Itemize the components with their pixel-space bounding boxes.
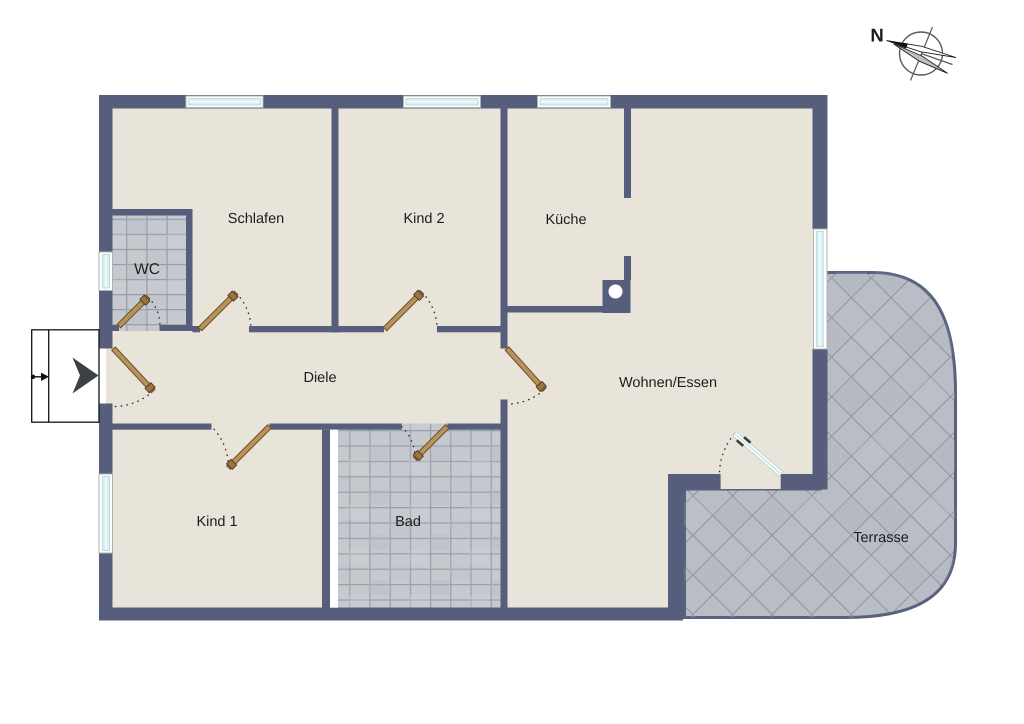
svg-text:Terrasse: Terrasse (853, 530, 909, 546)
svg-text:Diele: Diele (303, 370, 336, 386)
svg-text:Bad: Bad (395, 514, 421, 530)
svg-text:Kind 2: Kind 2 (403, 211, 444, 227)
svg-text:Wohnen/Essen: Wohnen/Essen (619, 375, 717, 391)
svg-text:WC: WC (134, 261, 160, 278)
svg-text:Küche: Küche (545, 212, 586, 228)
svg-text:Schlafen: Schlafen (228, 211, 284, 227)
svg-text:Kind 1: Kind 1 (196, 514, 237, 530)
svg-text:N: N (870, 25, 883, 46)
